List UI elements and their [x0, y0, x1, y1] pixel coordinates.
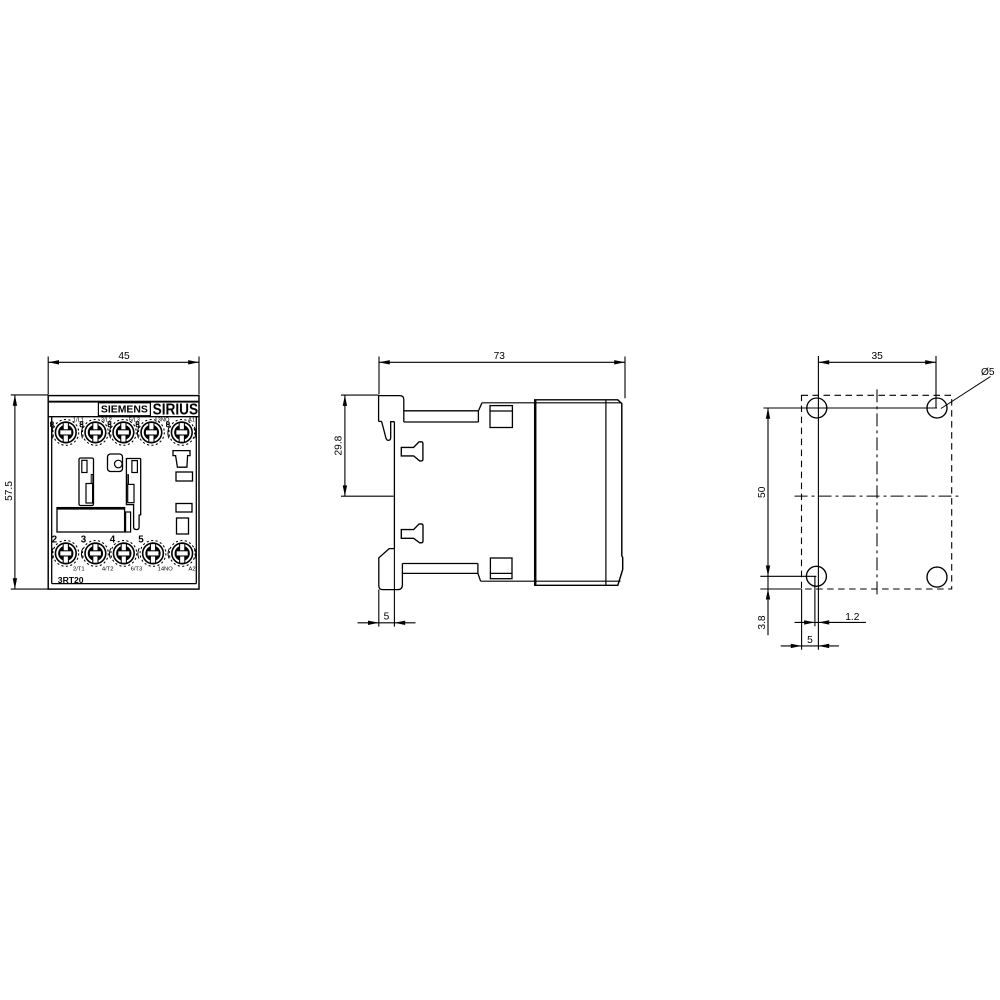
svg-text:45: 45 [118, 351, 130, 362]
svg-text:Ø5: Ø5 [981, 367, 995, 378]
svg-text:5: 5 [807, 635, 813, 646]
svg-text:5: 5 [384, 612, 390, 623]
svg-text:35: 35 [872, 351, 884, 362]
svg-text:3.8: 3.8 [757, 615, 768, 629]
svg-text:5: 5 [138, 535, 144, 546]
svg-text:2/T1: 2/T1 [73, 566, 85, 572]
svg-text:SIEMENS: SIEMENS [101, 405, 148, 416]
svg-text:57.5: 57.5 [4, 481, 15, 501]
svg-text:1.2: 1.2 [845, 612, 859, 623]
svg-text:A1: A1 [188, 418, 195, 424]
svg-text:SIRIUS: SIRIUS [153, 401, 199, 418]
svg-text:29.8: 29.8 [334, 435, 345, 455]
svg-text:14NO: 14NO [158, 566, 174, 572]
svg-text:50: 50 [757, 486, 768, 498]
svg-text:4/T2: 4/T2 [102, 566, 114, 572]
svg-text:73: 73 [494, 351, 506, 362]
svg-text:13NO: 13NO [154, 418, 170, 424]
svg-text:3RT20: 3RT20 [58, 575, 84, 585]
svg-text:A2: A2 [188, 566, 195, 572]
svg-text:6/T3: 6/T3 [131, 566, 143, 572]
